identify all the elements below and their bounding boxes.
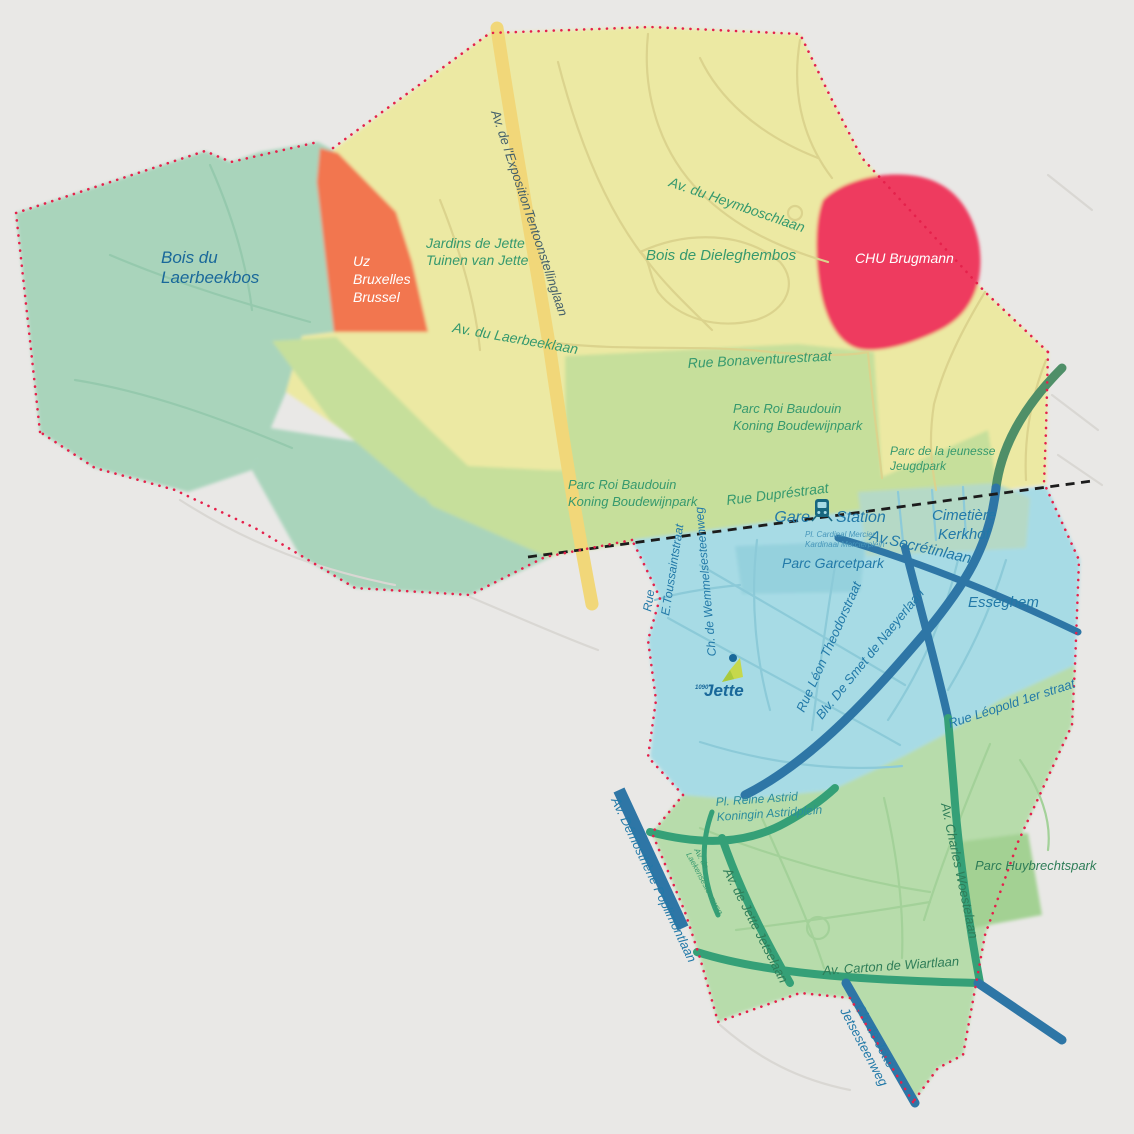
jette-map: Bois du Laerbeekbos Uz Bruxelles Brussel… (0, 0, 1134, 1134)
label-parc-huybrechts: Parc Huybrechtspark (975, 858, 1098, 873)
label-parc-roi-lower-line1: Parc Roi Baudouin (568, 477, 676, 492)
label-parc-roi-lower-line2: Koning Boudewijnpark (568, 494, 699, 509)
label-jardins-line2: Tuinen van Jette (426, 252, 529, 268)
label-mercier-line1: Pl. Cardinal Mercier (805, 530, 876, 539)
jette-logo-dot (729, 654, 737, 662)
label-parc-roi-upper-line1: Parc Roi Baudouin (733, 401, 841, 416)
label-gare: Gare (774, 509, 810, 526)
label-uz-line2: Bruxelles (353, 271, 411, 287)
jette-logo-name: Jette (704, 681, 744, 700)
label-cimetiere-line1: Cimetière (932, 507, 996, 524)
label-parc-garcet: Parc Garcetpark (782, 555, 885, 571)
label-laerbeekbos-line2: Laerbeekbos (161, 268, 260, 287)
label-parc-roi-upper-line2: Koning Boudewijnpark (733, 418, 864, 433)
label-cimetiere-line2: Kerkhof (938, 526, 992, 543)
label-esseghem: Esseghem (968, 594, 1039, 611)
label-dieleghembos: Bois de Dieleghembos (646, 247, 797, 264)
label-mercier-line2: Kardinaal Mercierplein (805, 540, 885, 549)
map-canvas: Bois du Laerbeekbos Uz Bruxelles Brussel… (0, 0, 1134, 1134)
label-parc-jeunesse-line1: Parc de la jeunesse (890, 444, 996, 458)
label-parc-jeunesse-line2: Jeugdpark (889, 459, 947, 473)
label-laerbeekbos-line1: Bois du (161, 248, 218, 267)
label-jardins-line1: Jardins de Jette (425, 235, 525, 251)
label-uz-line3: Brussel (353, 289, 401, 305)
label-chu: CHU Brugmann (855, 250, 954, 266)
label-station: Station (836, 509, 886, 526)
label-uz-line1: Uz (353, 253, 370, 269)
